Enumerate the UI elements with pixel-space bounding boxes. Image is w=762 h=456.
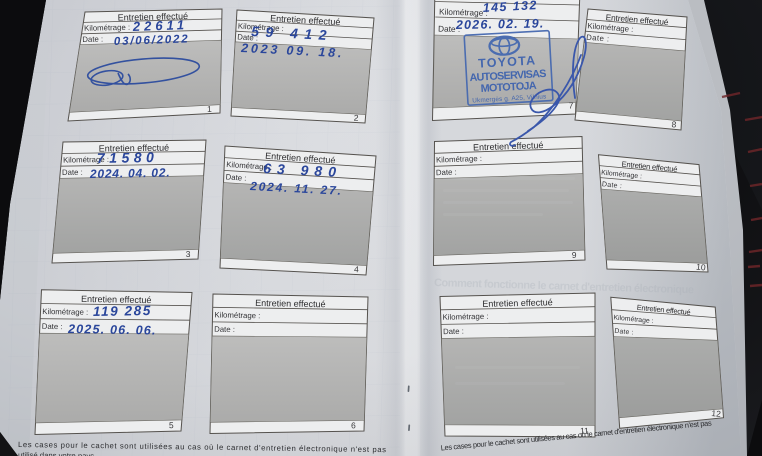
svg-text:Entretien effectué: Entretien effectué [482, 297, 553, 309]
svg-text:2025. 06. 06.: 2025. 06. 06. [67, 322, 157, 338]
svg-text:71580: 71580 [97, 149, 159, 166]
svg-text:Kilométrage :: Kilométrage : [439, 7, 488, 18]
svg-text:Kilométrage :: Kilométrage : [214, 310, 260, 320]
svg-text:Entretien effectué: Entretien effectué [255, 298, 326, 309]
svg-text:Kilométrage :: Kilométrage : [436, 154, 482, 165]
svg-text:Date :: Date : [225, 172, 246, 182]
svg-text:6: 6 [351, 420, 356, 430]
svg-text:1: 1 [207, 104, 212, 114]
svg-text:Date :: Date : [443, 327, 464, 336]
svg-text:Kilométrage :: Kilométrage : [442, 312, 488, 322]
svg-text:7: 7 [569, 101, 574, 111]
svg-text:2026. 02. 19.: 2026. 02. 19. [455, 16, 545, 32]
svg-text:Date :: Date : [82, 35, 103, 44]
svg-text:12: 12 [711, 408, 722, 419]
svg-text:Kilométrage :: Kilométrage : [84, 23, 130, 33]
svg-text:utilisé dans votre pays: utilisé dans votre pays [18, 451, 94, 456]
svg-text:2: 2 [354, 113, 360, 123]
svg-text:Date :: Date : [214, 325, 235, 334]
svg-text:5: 5 [169, 420, 174, 430]
svg-text:Date :: Date : [62, 168, 83, 177]
svg-text:Date :: Date : [586, 33, 610, 44]
svg-text:Kilométrage :: Kilométrage : [42, 307, 88, 317]
svg-text:22611: 22611 [132, 17, 189, 34]
svg-text:4: 4 [354, 264, 360, 274]
svg-text:2024. 04. 02.: 2024. 04. 02. [89, 166, 171, 181]
svg-text:Date :: Date : [436, 168, 457, 178]
svg-text:Date :: Date : [42, 322, 63, 331]
svg-text:10: 10 [696, 262, 707, 273]
svg-text:3: 3 [186, 249, 191, 259]
svg-text:119 285: 119 285 [93, 303, 152, 319]
svg-text:9: 9 [572, 250, 577, 260]
